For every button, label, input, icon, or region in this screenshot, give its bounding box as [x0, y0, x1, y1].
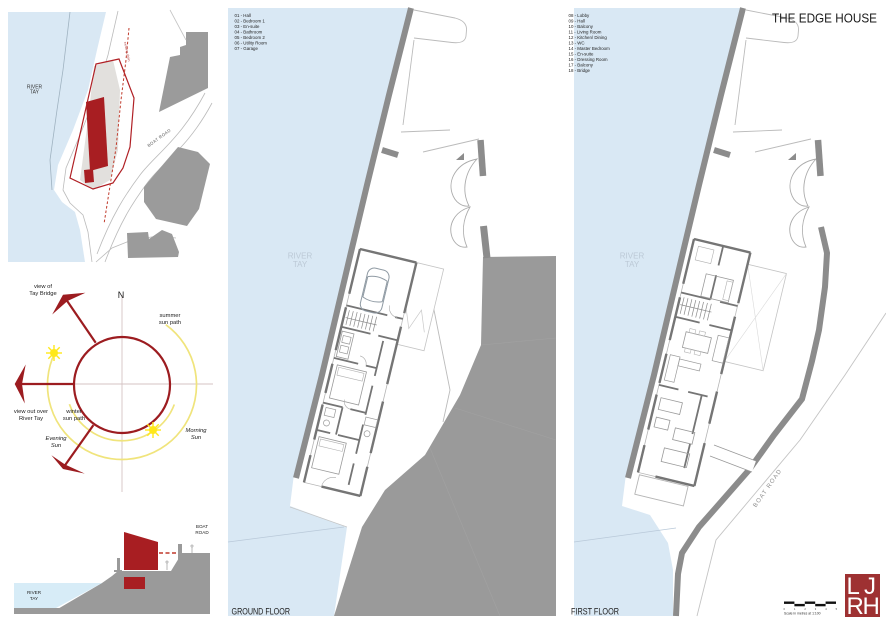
- svg-text:2: 2: [804, 607, 806, 611]
- svg-text:18 - Bridge: 18 - Bridge: [569, 68, 591, 73]
- svg-text:11 - Living Room: 11 - Living Room: [569, 30, 602, 35]
- svg-text:01 - Hall: 01 - Hall: [235, 13, 251, 18]
- svg-text:4: 4: [825, 607, 827, 611]
- svg-text:05 - Bedroom 2: 05 - Bedroom 2: [235, 35, 266, 40]
- svg-text:TAY: TAY: [293, 260, 308, 269]
- svg-text:RIVER: RIVER: [620, 251, 645, 260]
- svg-text:Tay Bridge: Tay Bridge: [29, 291, 56, 297]
- svg-text:14 - Master Bedroom: 14 - Master Bedroom: [569, 46, 611, 51]
- svg-text:04 - Bathroom: 04 - Bathroom: [235, 30, 263, 35]
- svg-text:RIVER: RIVER: [27, 590, 42, 595]
- svg-text:09 - Hall: 09 - Hall: [569, 19, 585, 24]
- svg-text:0: 0: [784, 607, 786, 611]
- svg-text:Scale in metres at 1:100: Scale in metres at 1:100: [784, 612, 821, 616]
- svg-text:BOAT: BOAT: [196, 524, 208, 529]
- svg-text:16 - Dressing Room: 16 - Dressing Room: [569, 57, 608, 62]
- svg-text:1: 1: [794, 607, 796, 611]
- svg-text:River Tay: River Tay: [19, 416, 43, 422]
- svg-text:08 - Lobby: 08 - Lobby: [569, 13, 591, 18]
- svg-text:17 - Balcony: 17 - Balcony: [569, 63, 594, 68]
- svg-text:12 - Kitchen/ Dining: 12 - Kitchen/ Dining: [569, 35, 608, 40]
- svg-text:RIVER: RIVER: [288, 251, 313, 260]
- svg-text:H: H: [863, 593, 880, 620]
- svg-text:R: R: [847, 593, 864, 620]
- svg-text:TAY: TAY: [30, 90, 40, 96]
- svg-text:N: N: [118, 290, 125, 300]
- svg-text:existing drain: existing drain: [123, 41, 131, 61]
- svg-text:view out over: view out over: [14, 409, 48, 415]
- svg-text:THE EDGE HOUSE: THE EDGE HOUSE: [772, 11, 877, 26]
- svg-text:07 - Garage: 07 - Garage: [235, 46, 259, 51]
- svg-text:02 - Bedroom 1: 02 - Bedroom 1: [235, 19, 266, 24]
- svg-text:Sun: Sun: [191, 435, 201, 441]
- svg-text:13 - WC: 13 - WC: [569, 41, 585, 46]
- svg-text:sun path: sun path: [63, 416, 85, 422]
- svg-text:Evening: Evening: [46, 436, 68, 442]
- svg-text:FIRST FLOOR: FIRST FLOOR: [571, 606, 619, 616]
- svg-text:06 - Utility Room: 06 - Utility Room: [235, 41, 268, 46]
- svg-text:Sun: Sun: [51, 443, 61, 449]
- svg-text:TAY: TAY: [625, 260, 640, 269]
- svg-text:winter: winter: [65, 409, 82, 415]
- svg-text:sun path: sun path: [159, 320, 181, 326]
- svg-text:Morning: Morning: [186, 428, 208, 434]
- svg-text:summer: summer: [160, 313, 181, 319]
- svg-text:BOAT ROAD: BOAT ROAD: [753, 468, 784, 509]
- svg-text:3: 3: [815, 607, 817, 611]
- svg-text:GROUND FLOOR: GROUND FLOOR: [232, 606, 291, 616]
- svg-text:03 - En-suite: 03 - En-suite: [235, 24, 260, 29]
- svg-text:5: 5: [836, 607, 838, 611]
- svg-text:view of: view of: [34, 284, 52, 290]
- svg-text:ROAD: ROAD: [195, 530, 209, 535]
- svg-text:TAY: TAY: [30, 596, 38, 601]
- svg-text:15 - En-suite: 15 - En-suite: [569, 52, 594, 57]
- svg-text:10 - Balcony: 10 - Balcony: [569, 24, 594, 29]
